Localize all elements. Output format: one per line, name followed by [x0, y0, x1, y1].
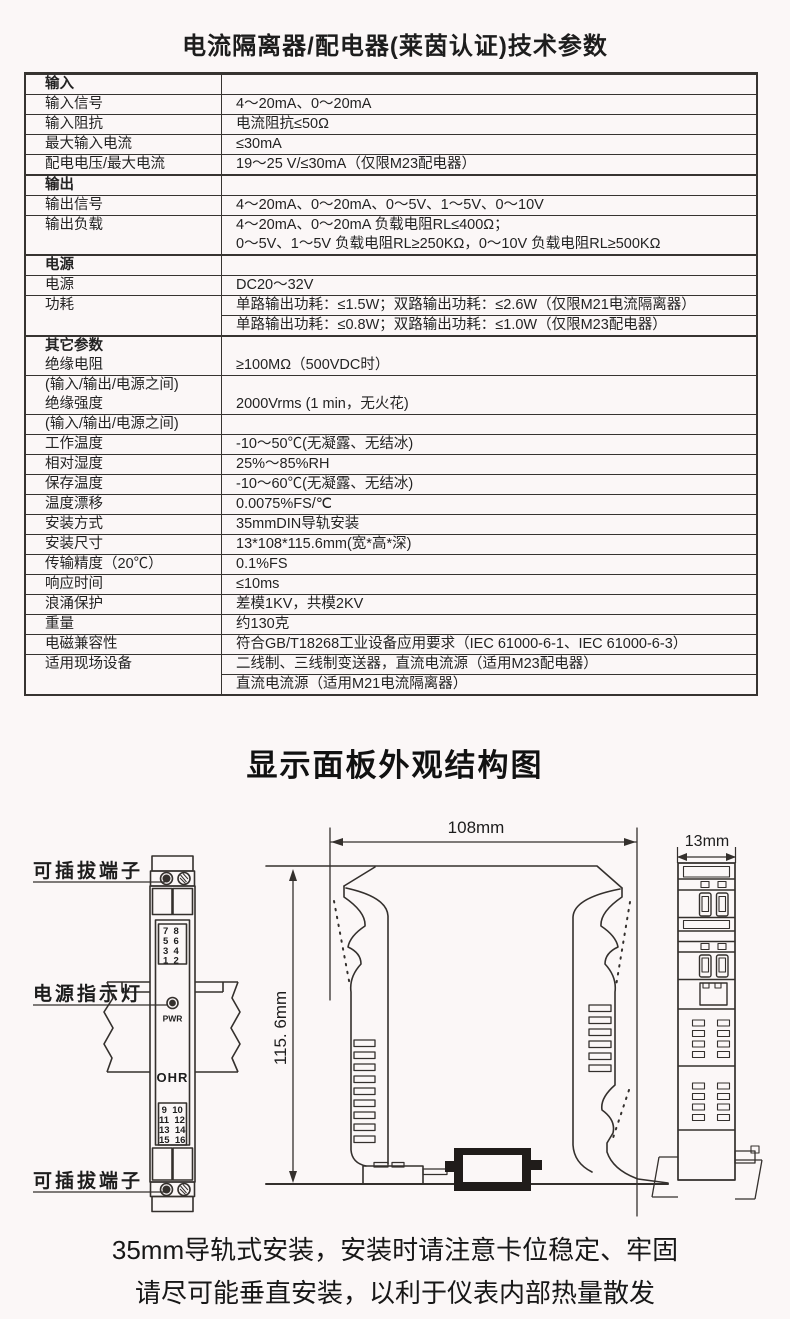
- spec-value-line: ≤30mA: [222, 135, 756, 154]
- vent-slots: [693, 1020, 730, 1058]
- end-view-drawing: [652, 847, 762, 1199]
- spec-row: 输入: [26, 75, 756, 94]
- spec-row: 保存温度 -10～60℃(无凝露、无结冰): [26, 474, 756, 494]
- connector-port: [700, 983, 727, 1005]
- spec-row: 工作温度 -10～50℃(无凝露、无结冰): [26, 434, 756, 454]
- spec-row: 相对湿度 25%～85%RH: [26, 454, 756, 474]
- spec-row: 电磁兼容性 符合GB/T18268工业设备应用要求（IEC 61000-6-1、…: [26, 634, 756, 654]
- spec-row: 功耗 单路输出功耗：≤1.5W；双路输出功耗：≤2.6W（仅限M21电流隔离器）…: [26, 295, 756, 335]
- spec-label-line: 功耗: [26, 296, 221, 315]
- install-note-line2: 请尽可能垂直安装，以利于仪表内部热量散发: [0, 1272, 790, 1315]
- spec-row: 输入阻抗 电流阻抗≤50Ω: [26, 114, 756, 134]
- spec-row: 输入信号 4～20mA、0～20mA: [26, 94, 756, 114]
- dim-depth-label: 13mm: [685, 833, 729, 850]
- terminal-numbers: 15 16: [159, 1135, 185, 1146]
- spec-value-line: 直流电流源（适用M21电流隔离器）: [222, 674, 756, 694]
- spec-label-line: 电源: [26, 256, 221, 275]
- section-title: 显示面板外观结构图: [0, 740, 790, 785]
- spec-value-line: [222, 415, 756, 434]
- spec-value-line: ≥100MΩ（500VDC时）: [222, 356, 756, 375]
- spec-label-line: 传输精度（20℃）: [26, 555, 221, 574]
- spec-value-line: 电流阻抗≤50Ω: [222, 115, 756, 134]
- vent-slots: [693, 1083, 730, 1121]
- spec-label-line: 温度漂移: [26, 495, 221, 514]
- spec-value-line: 19～25 V/≤30mA（仅限M23配电器）: [222, 155, 756, 174]
- spec-label-line: 最大输入电流: [26, 135, 221, 154]
- spec-row: (输入/输出/电源之间) 绝缘强度 2000Vrms (1 min，无火花): [26, 375, 756, 414]
- spec-row: 安装尺寸 13*108*115.6mm(宽*高*深): [26, 534, 756, 554]
- spec-row: 适用现场设备 二线制、三线制变送器，直流电流源（适用M23配电器） 直流电流源（…: [26, 654, 756, 694]
- spec-row: 输出负载 4～20mA、0～20mA 负载电阻RL≤400Ω； 0～5V、1～5…: [26, 215, 756, 254]
- spec-row: 输出: [26, 174, 756, 195]
- spec-label-line: 输出负载: [26, 216, 221, 235]
- page-title: 电流隔离器/配电器(莱茵认证)技术参数: [0, 26, 790, 61]
- spec-row: 电源 DC20～32V: [26, 275, 756, 295]
- spec-label-line: 输入: [26, 75, 221, 94]
- spec-row: 重量 约130克: [26, 614, 756, 634]
- spec-label-line: 工作温度: [26, 435, 221, 454]
- spec-label-line: (输入/输出/电源之间): [26, 376, 221, 395]
- spec-label-line: 输入信号: [26, 95, 221, 114]
- spec-value-line: 25%～85%RH: [222, 455, 756, 474]
- spec-row: 电源: [26, 254, 756, 275]
- spec-label-line: 电磁兼容性: [26, 635, 221, 654]
- spec-label-line: 绝缘强度: [26, 395, 221, 414]
- spec-row: 安装方式 35mmDIN导轨安装: [26, 514, 756, 534]
- front-view-drawing: [33, 856, 240, 1212]
- label-pluggable-terminal-top: 可插拔端子: [33, 859, 143, 882]
- install-note: 35mm导轨式安装，安装时请注意卡位稳定、牢固 请尽可能垂直安装，以利于仪表内部…: [0, 1229, 790, 1315]
- spec-value-line: 4～20mA、0～20mA、0～5V、1～5V、0～10V: [222, 196, 756, 215]
- structure-diagram: 可插拔端子 电源指示灯 可插拔端子 7 8 5 6 3 4 1 2 PWR OH…: [0, 810, 790, 1235]
- spec-label-line: 电源: [26, 276, 221, 295]
- spec-row: 最大输入电流 ≤30mA: [26, 134, 756, 154]
- spec-label-line: 输出: [26, 176, 221, 195]
- spec-row: (输入/输出/电源之间): [26, 414, 756, 434]
- spec-value-line: 0～5V、1～5V 负载电阻RL≥250KΩ，0～10V 负载电阻RL≥500K…: [222, 235, 756, 254]
- spec-label-line: 配电电压/最大电流: [26, 155, 221, 174]
- spec-value-line: 约130克: [222, 615, 756, 634]
- spec-label-line: (输入/输出/电源之间): [26, 415, 221, 434]
- dim-width-label: 108mm: [448, 818, 505, 837]
- spec-label-line: 绝缘电阻: [26, 356, 221, 375]
- spec-label-line: 适用现场设备: [26, 655, 221, 674]
- spec-value-line: 0.1%FS: [222, 555, 756, 574]
- spec-row: 响应时间 ≤10ms: [26, 574, 756, 594]
- din-rail: [652, 1146, 762, 1199]
- spec-value-line: 单路输出功耗：≤1.5W；双路输出功耗：≤2.6W（仅限M21电流隔离器）: [222, 296, 756, 315]
- spec-value-line: DC20～32V: [222, 276, 756, 295]
- label-pluggable-terminal-bottom: 可插拔端子: [33, 1169, 143, 1192]
- spec-value-line: [222, 337, 756, 356]
- spec-label-line: 输出信号: [26, 196, 221, 215]
- din-clip-latch: [363, 1163, 447, 1185]
- spec-label-line: 相对湿度: [26, 455, 221, 474]
- dotted-line: [613, 1090, 629, 1138]
- spec-value-line: 35mmDIN导轨安装: [222, 515, 756, 534]
- spec-value-line: 4～20mA、0～20mA 负载电阻RL≤400Ω；: [222, 216, 756, 235]
- dimension-height: [289, 869, 297, 1183]
- spec-row: 浪涌保护 差模1KV，共模2KV: [26, 594, 756, 614]
- spec-label-line: 响应时间: [26, 575, 221, 594]
- spec-value-line: 差模1KV，共模2KV: [222, 595, 756, 614]
- install-note-line1: 35mm导轨式安装，安装时请注意卡位稳定、牢固: [0, 1229, 790, 1272]
- spec-label-line: 保存温度: [26, 475, 221, 494]
- dim-height-label: 115. 6mm: [271, 991, 290, 1065]
- spec-row: 温度漂移 0.0075%FS/℃: [26, 494, 756, 514]
- spec-value-line: -10～50℃(无凝露、无结冰): [222, 435, 756, 454]
- spec-value-line: [222, 376, 756, 395]
- spec-row: 传输精度（20℃） 0.1%FS: [26, 554, 756, 574]
- din-clip: [445, 1148, 542, 1191]
- spec-table: 输入 输入信号 4～20mA、0～20mA 输入阻抗 电流阻抗≤50Ω 最大输入…: [24, 72, 758, 696]
- spec-label-line: 浪涌保护: [26, 595, 221, 614]
- dotted-line: [334, 901, 350, 986]
- spec-value-line: 2000Vrms (1 min，无火花): [222, 395, 756, 414]
- screw-icon: [163, 875, 169, 881]
- spec-value-line: 符合GB/T18268工业设备应用要求（IEC 61000-6-1、IEC 61…: [222, 635, 756, 654]
- spec-row: 输出信号 4～20mA、0～20mA、0～5V、1～5V、0～10V: [26, 195, 756, 215]
- side-view-drawing: [266, 828, 668, 1216]
- spec-value-line: 0.0075%FS/℃: [222, 495, 756, 514]
- spec-label-line: 安装方式: [26, 515, 221, 534]
- spec-value-line: -10～60℃(无凝露、无结冰): [222, 475, 756, 494]
- dotted-line: [616, 902, 630, 986]
- spec-label-line: 重量: [26, 615, 221, 634]
- label-power-indicator: 电源指示灯: [33, 982, 143, 1005]
- spec-value-line: [222, 256, 756, 275]
- brand-logo: OHR: [157, 1070, 189, 1085]
- screw-icon: [163, 1186, 169, 1192]
- spec-value-line: 二线制、三线制变送器，直流电流源（适用M23配电器）: [222, 655, 756, 674]
- spec-label-line: 输入阻抗: [26, 115, 221, 134]
- spec-value-line: [222, 176, 756, 195]
- pwr-label: PWR: [163, 1014, 183, 1024]
- spec-row: 配电电压/最大电流 19～25 V/≤30mA（仅限M23配电器）: [26, 154, 756, 174]
- spec-value-line: 4～20mA、0～20mA: [222, 95, 756, 114]
- spec-label-line: 其它参数: [26, 337, 221, 356]
- spec-value-line: [222, 75, 756, 94]
- spec-label-line: 安装尺寸: [26, 535, 221, 554]
- terminal-numbers: 1 2: [163, 956, 179, 967]
- spec-value-line: ≤10ms: [222, 575, 756, 594]
- spec-value-line: 单路输出功耗：≤0.8W；双路输出功耗：≤1.0W（仅限M23配电器）: [222, 315, 756, 335]
- spec-row: 其它参数 绝缘电阻 ≥100MΩ（500VDC时）: [26, 335, 756, 375]
- spec-value-line: 13*108*115.6mm(宽*高*深): [222, 535, 756, 554]
